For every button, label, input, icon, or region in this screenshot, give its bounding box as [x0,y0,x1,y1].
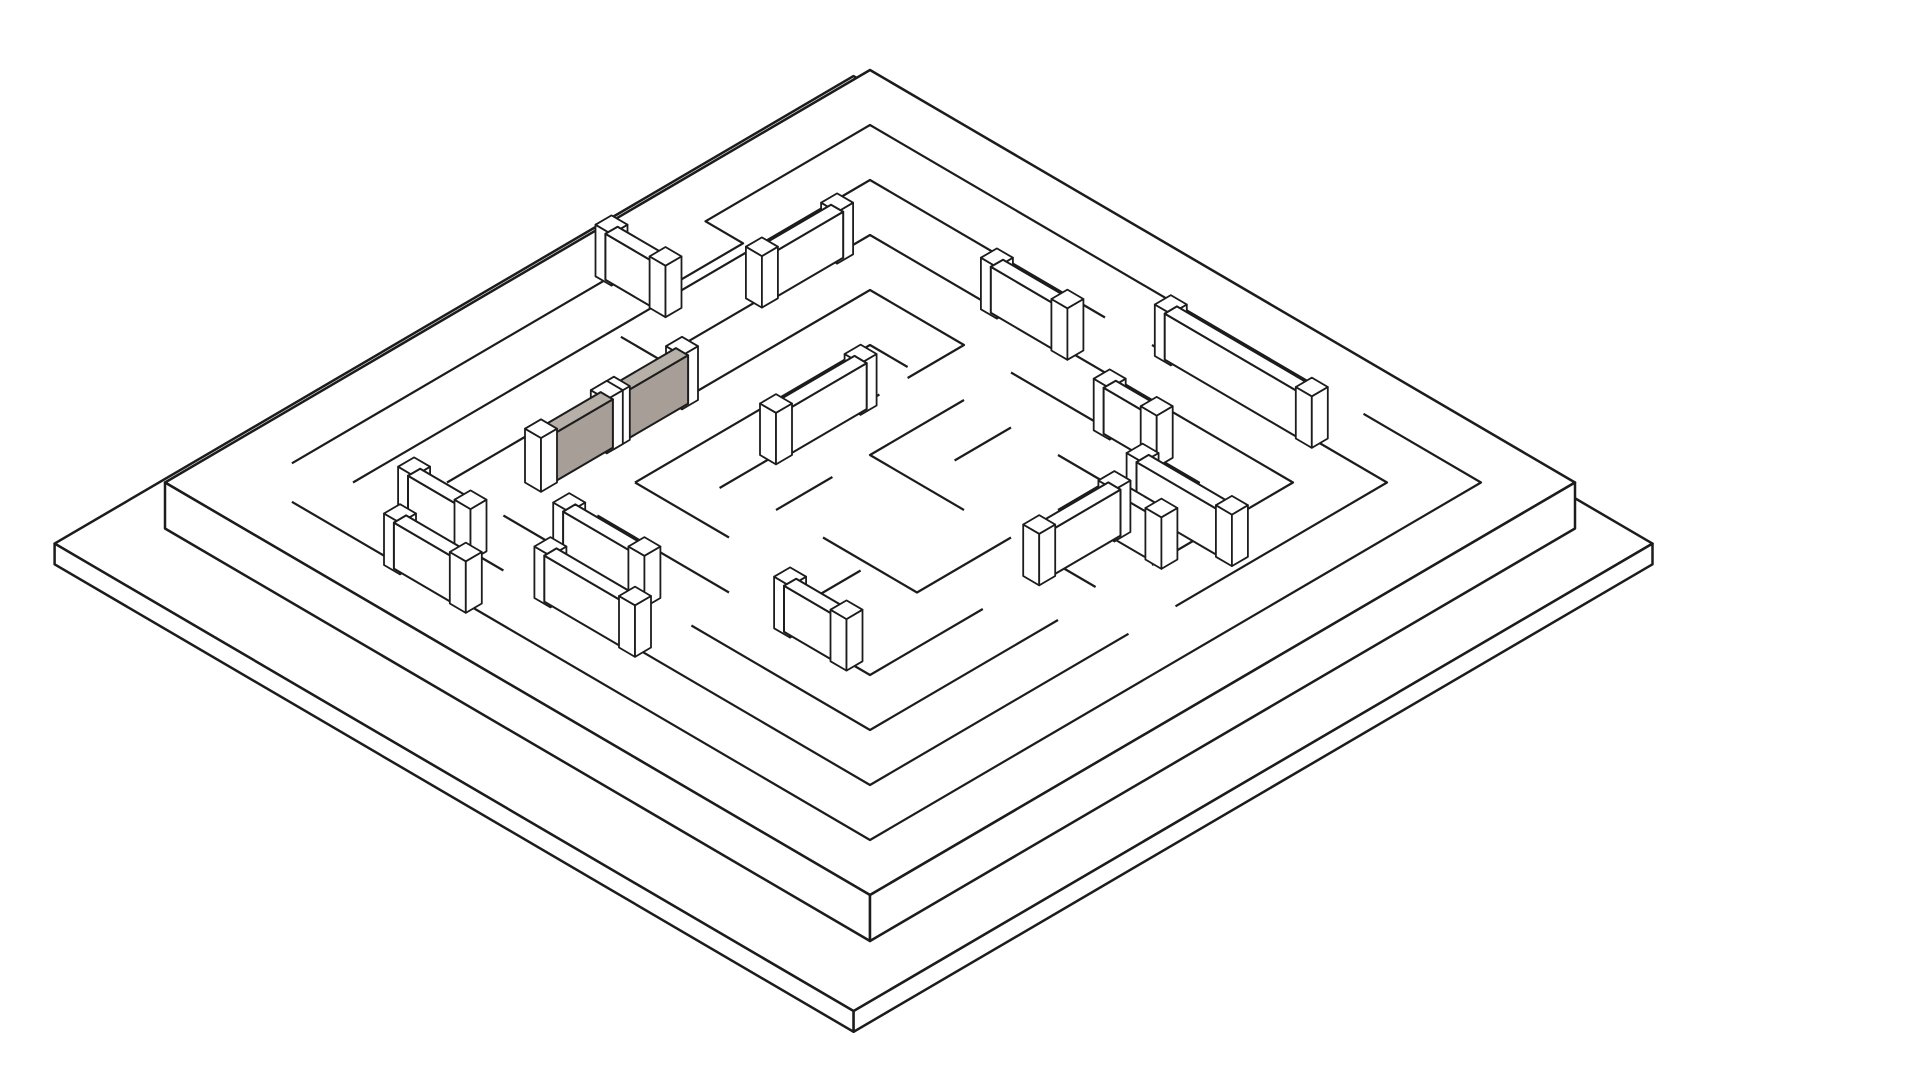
wall-post-face [762,247,778,308]
wall-post-face [847,610,863,671]
wall-post-face [1161,508,1177,569]
isometric-maze-illustration [0,0,1920,1080]
wall-post-face [746,247,762,308]
wall-post-face [635,596,651,657]
wall-post-face [650,256,666,317]
wall-post-face [619,596,635,657]
wall-post-face [466,552,482,613]
wall-post-face [1232,505,1248,566]
wall-post-face [1067,299,1083,360]
wall-post-face [450,552,466,613]
wall-post-face [541,429,557,492]
maze-plate [165,70,1575,941]
wall-post-face [760,404,776,465]
canvas-background [0,0,1920,1080]
wall-post-face [1145,508,1161,569]
wall-post-face [831,610,847,671]
wall-post-face [1216,505,1232,566]
wall-post-face [1051,299,1067,360]
wall-post-face [776,404,792,465]
wall-post-face [1039,525,1055,586]
wall-post-face [1023,525,1039,586]
wall-post-face [666,256,682,317]
wall-post-face [1312,387,1328,448]
wall-post-face [525,429,541,492]
maze-plate-top-face [165,70,1575,895]
wall-post-face [1296,387,1312,448]
